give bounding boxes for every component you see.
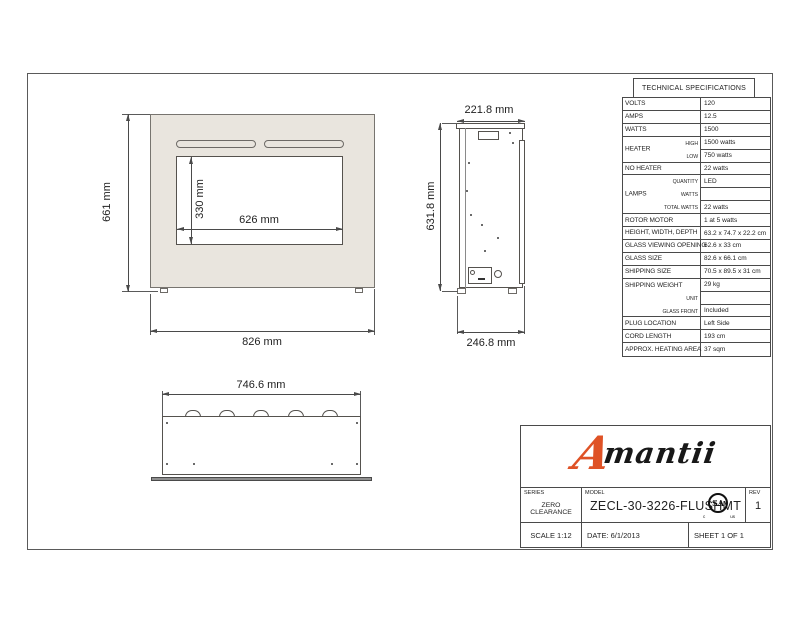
screw-dot bbox=[356, 422, 358, 424]
screw-dot bbox=[484, 250, 486, 252]
front-foot-right bbox=[355, 288, 363, 293]
spec-value-watts: 1500 bbox=[701, 124, 770, 137]
side-foot-left bbox=[457, 288, 466, 294]
spec-label-heater: HEATER bbox=[625, 146, 650, 153]
side-label-plate bbox=[478, 131, 499, 140]
rev-value: 1 bbox=[746, 500, 770, 512]
screw-dot bbox=[356, 463, 358, 465]
spec-label-shipping-weight-group: SHIPPING WEIGHT UNIT GLASS FRONT bbox=[623, 279, 700, 318]
dim-label-626: 626 mm bbox=[209, 214, 309, 226]
csa-us-label: us bbox=[730, 514, 735, 519]
spec-table: VOLTS AMPS WATTS HEATER HIGH LOW NO HEAT… bbox=[622, 97, 771, 357]
spec-value-column: 120 12.5 1500 1500 watts 750 watts 22 wa… bbox=[701, 98, 770, 356]
side-view-top-cap bbox=[456, 123, 525, 129]
dim-label-246-8: 246.8 mm bbox=[441, 337, 541, 349]
front-vent-slot-left bbox=[176, 140, 256, 148]
scale-cell: SCALE 1:12 bbox=[521, 523, 582, 547]
dim-line-depth-246-8 bbox=[457, 332, 525, 333]
spec-label-hwd: HEIGHT, WIDTH, DEPTH bbox=[623, 227, 700, 240]
spec-value-glass-size: 82.6 x 66.1 cm bbox=[701, 253, 770, 266]
spec-sublabel-quantity: QUANTITY bbox=[673, 179, 698, 185]
spec-value-lamps-watts bbox=[701, 188, 770, 201]
spec-value-cord-length: 193 cm bbox=[701, 330, 770, 343]
dim-line-width-746-6 bbox=[162, 394, 361, 395]
dim-label-746-6: 746.6 mm bbox=[211, 379, 311, 391]
spec-value-lamps-total-watts: 22 watts bbox=[701, 201, 770, 214]
screw-dot bbox=[470, 214, 472, 216]
side-foot-right bbox=[508, 288, 517, 294]
rev-label: REV bbox=[749, 490, 760, 496]
spec-label-shipping-size: SHIPPING SIZE bbox=[623, 266, 700, 279]
spec-label-amps: AMPS bbox=[623, 111, 700, 124]
side-mounting-flange bbox=[519, 140, 525, 284]
dim-label-661: 661 mm bbox=[101, 157, 113, 247]
front-foot-left bbox=[160, 288, 168, 293]
spec-value-volts: 120 bbox=[701, 98, 770, 111]
extension-line bbox=[457, 296, 458, 334]
dim-line-height-661 bbox=[128, 114, 129, 292]
model-cell: MODEL ZECL-30-3226-FLUSHMT SA c us bbox=[582, 488, 746, 522]
spec-value-heater-low: 750 watts bbox=[701, 150, 770, 163]
extension-line bbox=[524, 286, 525, 334]
spec-label-cord-length: CORD LENGTH bbox=[623, 330, 700, 343]
spec-table-title: TECHNICAL SPECIFICATIONS bbox=[633, 78, 755, 98]
spec-value-shipping-weight: 29 kg bbox=[701, 279, 770, 292]
spec-label-glass-size: GLASS SIZE bbox=[623, 253, 700, 266]
csa-certification-mark: SA c us bbox=[703, 493, 737, 519]
series-cell: SERIES ZERO CLEARANCE bbox=[521, 488, 582, 522]
spec-sublabel-high: HIGH bbox=[685, 141, 698, 147]
spec-label-gvo: GLASS VIEWING OPENING bbox=[623, 240, 700, 253]
dim-label-330: 330 mm bbox=[194, 154, 206, 244]
spec-sublabel-glass-front: GLASS FRONT bbox=[662, 309, 698, 315]
extension-line bbox=[442, 291, 458, 292]
spec-label-heating-area: APPROX. HEATING AREA bbox=[623, 343, 700, 356]
date-cell: DATE: 6/1/2013 bbox=[582, 523, 689, 547]
amantii-logo: Amantii bbox=[521, 428, 770, 478]
spec-label-column: VOLTS AMPS WATTS HEATER HIGH LOW NO HEAT… bbox=[623, 98, 701, 356]
dim-label-631-8: 631.8 mm bbox=[425, 161, 437, 251]
spec-label-shipping-weight: SHIPPING WEIGHT bbox=[625, 282, 682, 289]
title-block: Amantii SERIES ZERO CLEARANCE MODEL ZECL… bbox=[520, 425, 771, 548]
spec-label-rotor-motor: ROTOR MOTOR bbox=[623, 214, 700, 227]
spec-sublabel-unit: UNIT bbox=[686, 296, 698, 302]
spec-label-plug-location: PLUG LOCATION bbox=[623, 317, 700, 330]
spec-value-heating-area: 37 sqm bbox=[701, 343, 770, 356]
logo-rest: mantii bbox=[601, 436, 718, 470]
spec-label-volts: VOLTS bbox=[623, 98, 700, 111]
spec-label-lamps-group: LAMPS QUANTITY WATTS TOTAL WATTS bbox=[623, 175, 700, 214]
spec-value-unit bbox=[701, 292, 770, 305]
spec-sublabel-lamps-watts: WATTS bbox=[681, 192, 698, 198]
spec-value-hwd: 63.2 x 74.7 x 22.2 cm bbox=[701, 227, 770, 240]
screw-dot bbox=[481, 224, 483, 226]
spec-value-heater-high: 1500 watts bbox=[701, 137, 770, 150]
dim-line-width-826 bbox=[150, 331, 375, 332]
bottom-trim-flange bbox=[151, 477, 372, 481]
screw-dot bbox=[166, 463, 168, 465]
spec-value-glass-front: Included bbox=[701, 305, 770, 318]
junction-box-mark bbox=[478, 278, 485, 280]
screw-dot bbox=[331, 463, 333, 465]
bottom-view-body bbox=[162, 416, 361, 475]
spec-value-gvo: 62.6 x 33 cm bbox=[701, 240, 770, 253]
screw-dot bbox=[497, 237, 499, 239]
logo-row: Amantii bbox=[521, 426, 770, 488]
csa-logo-icon: SA bbox=[708, 493, 728, 513]
title-block-bottom-row: SCALE 1:12 DATE: 6/1/2013 SHEET 1 OF 1 bbox=[521, 523, 770, 547]
sheet-cell: SHEET 1 OF 1 bbox=[689, 523, 770, 547]
spec-label-lamps: LAMPS bbox=[625, 191, 647, 198]
screw-dot bbox=[509, 132, 511, 134]
screw-dot bbox=[466, 190, 468, 192]
title-block-middle-row: SERIES ZERO CLEARANCE MODEL ZECL-30-3226… bbox=[521, 488, 770, 523]
spec-sheet: 661 mm 330 mm 626 mm 826 mm 221.8 mm 631… bbox=[0, 0, 800, 640]
spec-sublabel-total-watts: TOTAL WATTS bbox=[664, 205, 698, 211]
spec-value-no-heater: 22 watts bbox=[701, 163, 770, 176]
junction-box-hole bbox=[470, 270, 475, 275]
spec-sublabel-low: LOW bbox=[686, 154, 698, 160]
dim-line-window-width-626 bbox=[177, 229, 343, 230]
extension-line bbox=[442, 123, 457, 124]
model-label: MODEL bbox=[585, 490, 605, 496]
spec-label-heater-group: HEATER HIGH LOW bbox=[623, 137, 700, 163]
series-value: ZERO CLEARANCE bbox=[521, 502, 581, 516]
rev-cell: REV 1 bbox=[746, 488, 770, 522]
side-knockout-circle bbox=[494, 270, 502, 278]
dim-label-826: 826 mm bbox=[212, 336, 312, 348]
spec-value-lamps-quantity: LED bbox=[701, 175, 770, 188]
spec-label-no-heater: NO HEATER bbox=[623, 163, 700, 176]
spec-value-shipping-size: 70.5 x 89.5 x 31 cm bbox=[701, 266, 770, 279]
screw-dot bbox=[193, 463, 195, 465]
series-label: SERIES bbox=[524, 490, 544, 496]
spec-value-amps: 12.5 bbox=[701, 111, 770, 124]
spec-value-rotor-motor: 1 at 5 watts bbox=[701, 214, 770, 227]
csa-c-label: c bbox=[703, 514, 705, 519]
spec-label-watts: WATTS bbox=[623, 124, 700, 137]
dim-line-height-631-8 bbox=[440, 123, 441, 291]
dim-label-221-8: 221.8 mm bbox=[439, 104, 539, 116]
screw-dot bbox=[166, 422, 168, 424]
dim-line-depth-221-8 bbox=[457, 121, 525, 122]
spec-value-plug-location: Left Side bbox=[701, 317, 770, 330]
front-vent-slot-right bbox=[264, 140, 344, 148]
screw-dot bbox=[468, 162, 470, 164]
dim-line-window-height-330 bbox=[191, 157, 192, 244]
side-inner-edge bbox=[465, 128, 466, 288]
side-view-body bbox=[459, 128, 523, 288]
screw-dot bbox=[512, 142, 514, 144]
